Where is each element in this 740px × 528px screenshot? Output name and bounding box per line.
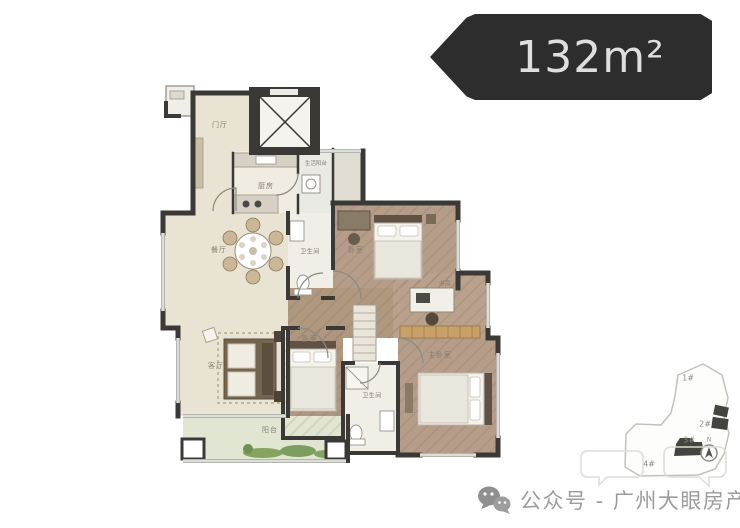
room-label-study: 书房 — [438, 279, 451, 288]
floorplan-drawing — [158, 83, 508, 483]
building-label-1: 1# — [682, 374, 694, 383]
ghost-bubble-outlines — [575, 445, 735, 487]
room-label-bath-2: 卫生间 — [362, 391, 382, 400]
watermark-text: 公众号 - 广州大眼房产 — [520, 485, 740, 515]
compass-north-label: N — [707, 437, 712, 444]
closet-strip — [353, 305, 376, 361]
room-label-living: 客厅 — [208, 361, 224, 371]
bedroom-3-furniture — [290, 341, 336, 411]
floorplan: 门厅 厨房 生活阳台 餐厅 卫生间 卧室 书房 卧室 卫生间 主卧室 客厅 阳台 — [158, 83, 508, 483]
building-label-3: 3# — [683, 436, 695, 445]
watermark: 公众号 - 广州大眼房产 — [476, 482, 740, 518]
room-label-dining: 餐厅 — [211, 245, 227, 255]
washer — [302, 175, 320, 193]
shoe-cabinet — [195, 138, 203, 188]
room-label-bedroom-2: 卧室 — [348, 245, 364, 255]
room-label-bedroom-3: 卧室 — [302, 334, 318, 344]
room-label-kitchen: 厨房 — [258, 181, 274, 191]
room-label-balcony: 阳台 — [262, 425, 278, 435]
wechat-icon — [476, 484, 512, 516]
room-label-service-balcony: 生活阳台 — [305, 159, 327, 167]
elevator — [249, 87, 320, 155]
master-bedroom-furniture — [405, 373, 492, 425]
room-label-bath-1: 卫生间 — [300, 247, 320, 256]
building-label-2: 2# — [699, 420, 711, 429]
room-label-master-bedroom: 主卧室 — [428, 350, 452, 360]
room-label-foyer: 门厅 — [212, 120, 228, 130]
area-tag-label: 132m² — [477, 32, 664, 83]
ac-platform — [166, 86, 194, 116]
